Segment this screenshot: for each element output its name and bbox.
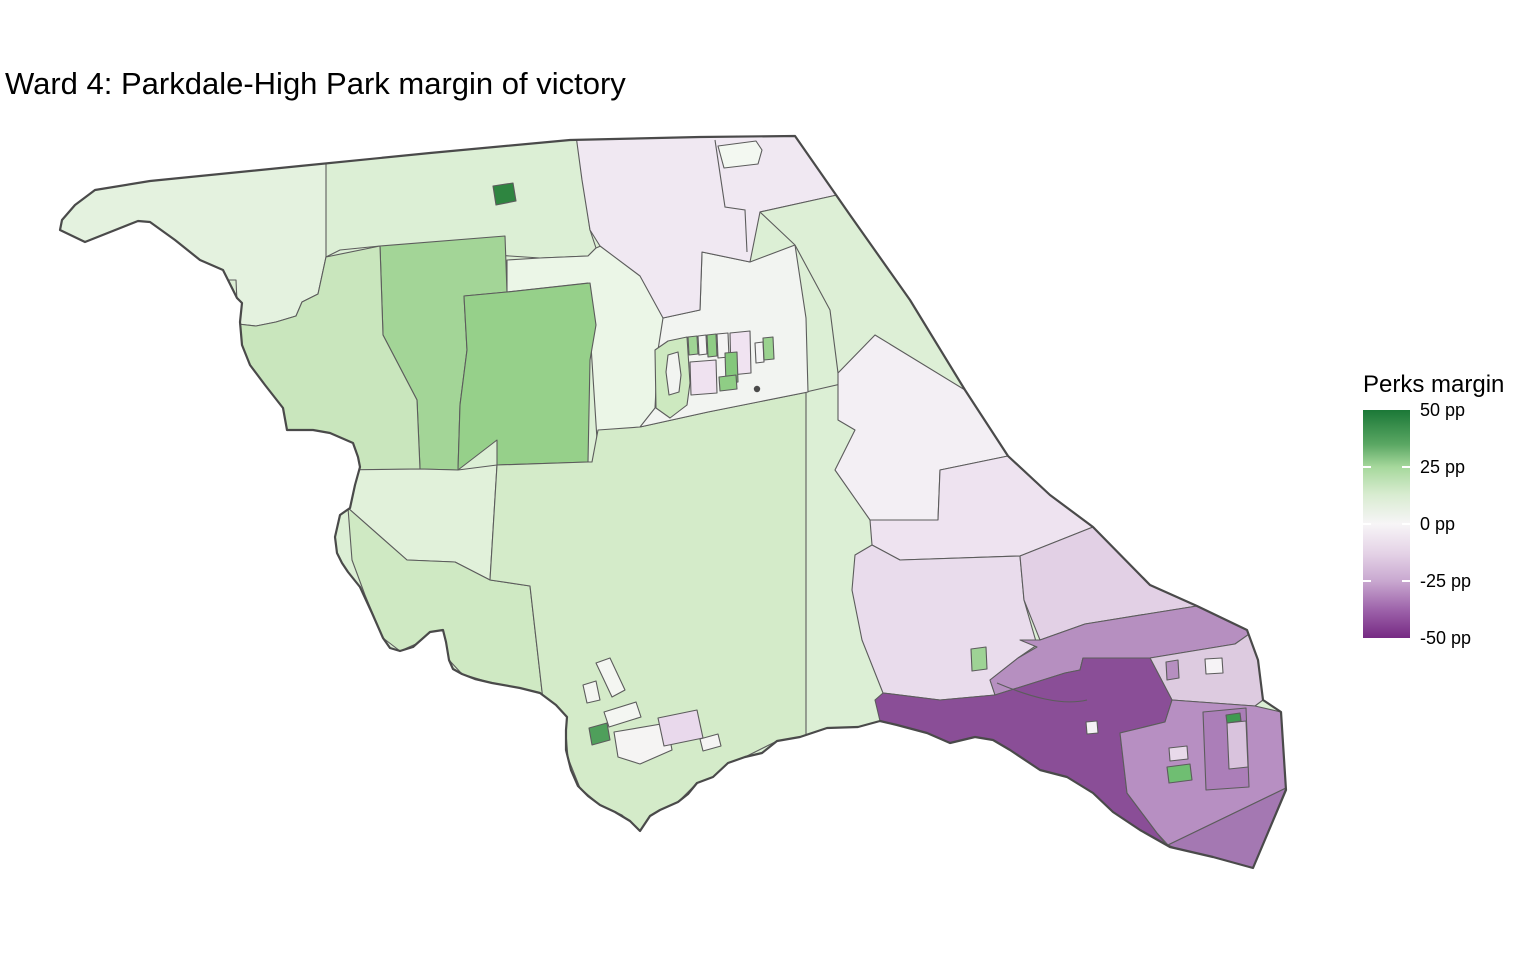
poll-green-dot <box>971 647 987 671</box>
chip-green <box>1167 764 1192 783</box>
ctr-g3 <box>719 375 737 391</box>
legend-tick-mark <box>1402 523 1410 525</box>
bldg-green-sliver <box>1226 713 1241 723</box>
legend-label: 50 pp <box>1420 400 1465 421</box>
ctr-w3 <box>755 342 764 363</box>
legend-tick-mark <box>1363 580 1371 582</box>
ctr-g1 <box>688 336 698 355</box>
ctr-w1 <box>698 335 707 355</box>
legend-colorbar <box>1363 410 1410 638</box>
ctr-g4 <box>763 337 774 360</box>
poll-white-dot <box>1086 721 1098 734</box>
legend-label: 25 pp <box>1420 457 1465 478</box>
poll-junction-block-east <box>458 283 596 470</box>
ctr-pale <box>690 360 717 395</box>
legend-tick-mark <box>1363 466 1371 468</box>
legend-tick-mark <box>1402 580 1410 582</box>
poll-purple-chip <box>1166 660 1179 680</box>
chip-pink <box>1169 746 1188 761</box>
ctr-hole <box>666 352 681 395</box>
legend: Perks margin 50 pp25 pp0 pp-25 pp-50 pp <box>1363 371 1536 413</box>
map-point-dot <box>754 386 760 392</box>
legend-label: -25 pp <box>1420 571 1471 592</box>
ctr-g2 <box>707 334 717 357</box>
poll-tiny-green <box>493 183 516 205</box>
poll-white-square <box>1205 658 1223 674</box>
poll-regions <box>30 120 1286 868</box>
legend-label: -50 pp <box>1420 628 1471 649</box>
bldg-inner <box>1227 721 1248 769</box>
legend-label: 0 pp <box>1420 514 1455 535</box>
legend-tick-mark <box>1363 523 1371 525</box>
poll-nw-strip <box>30 120 330 326</box>
poll-white-blob <box>718 141 762 168</box>
legend-tick-mark <box>1402 466 1410 468</box>
choropleth-map <box>0 0 1536 960</box>
legend-title: Perks margin <box>1363 371 1536 399</box>
poll-north-2 <box>326 124 596 258</box>
